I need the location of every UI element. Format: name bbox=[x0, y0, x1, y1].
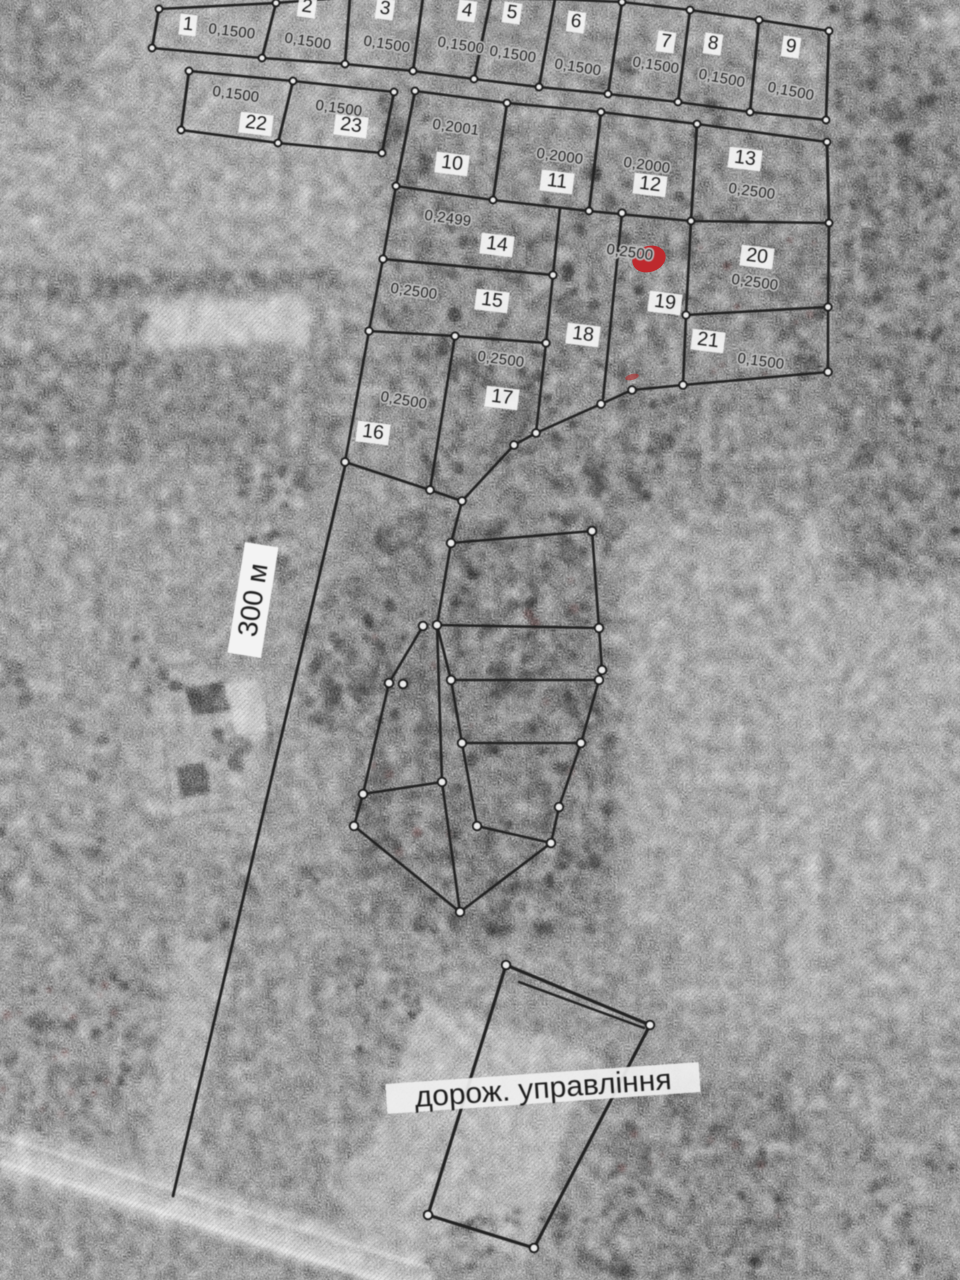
svg-text:21: 21 bbox=[696, 328, 720, 352]
svg-text:11: 11 bbox=[546, 169, 569, 193]
svg-text:17: 17 bbox=[490, 385, 514, 409]
svg-text:1: 1 bbox=[182, 14, 195, 36]
svg-text:22: 22 bbox=[244, 111, 268, 135]
svg-text:14: 14 bbox=[485, 232, 509, 256]
svg-text:19: 19 bbox=[653, 290, 677, 314]
svg-text:10: 10 bbox=[440, 151, 464, 175]
svg-text:20: 20 bbox=[745, 244, 769, 268]
svg-text:16: 16 bbox=[361, 420, 385, 444]
svg-text:13: 13 bbox=[733, 146, 757, 170]
svg-text:15: 15 bbox=[480, 288, 504, 312]
svg-text:18: 18 bbox=[571, 322, 595, 346]
